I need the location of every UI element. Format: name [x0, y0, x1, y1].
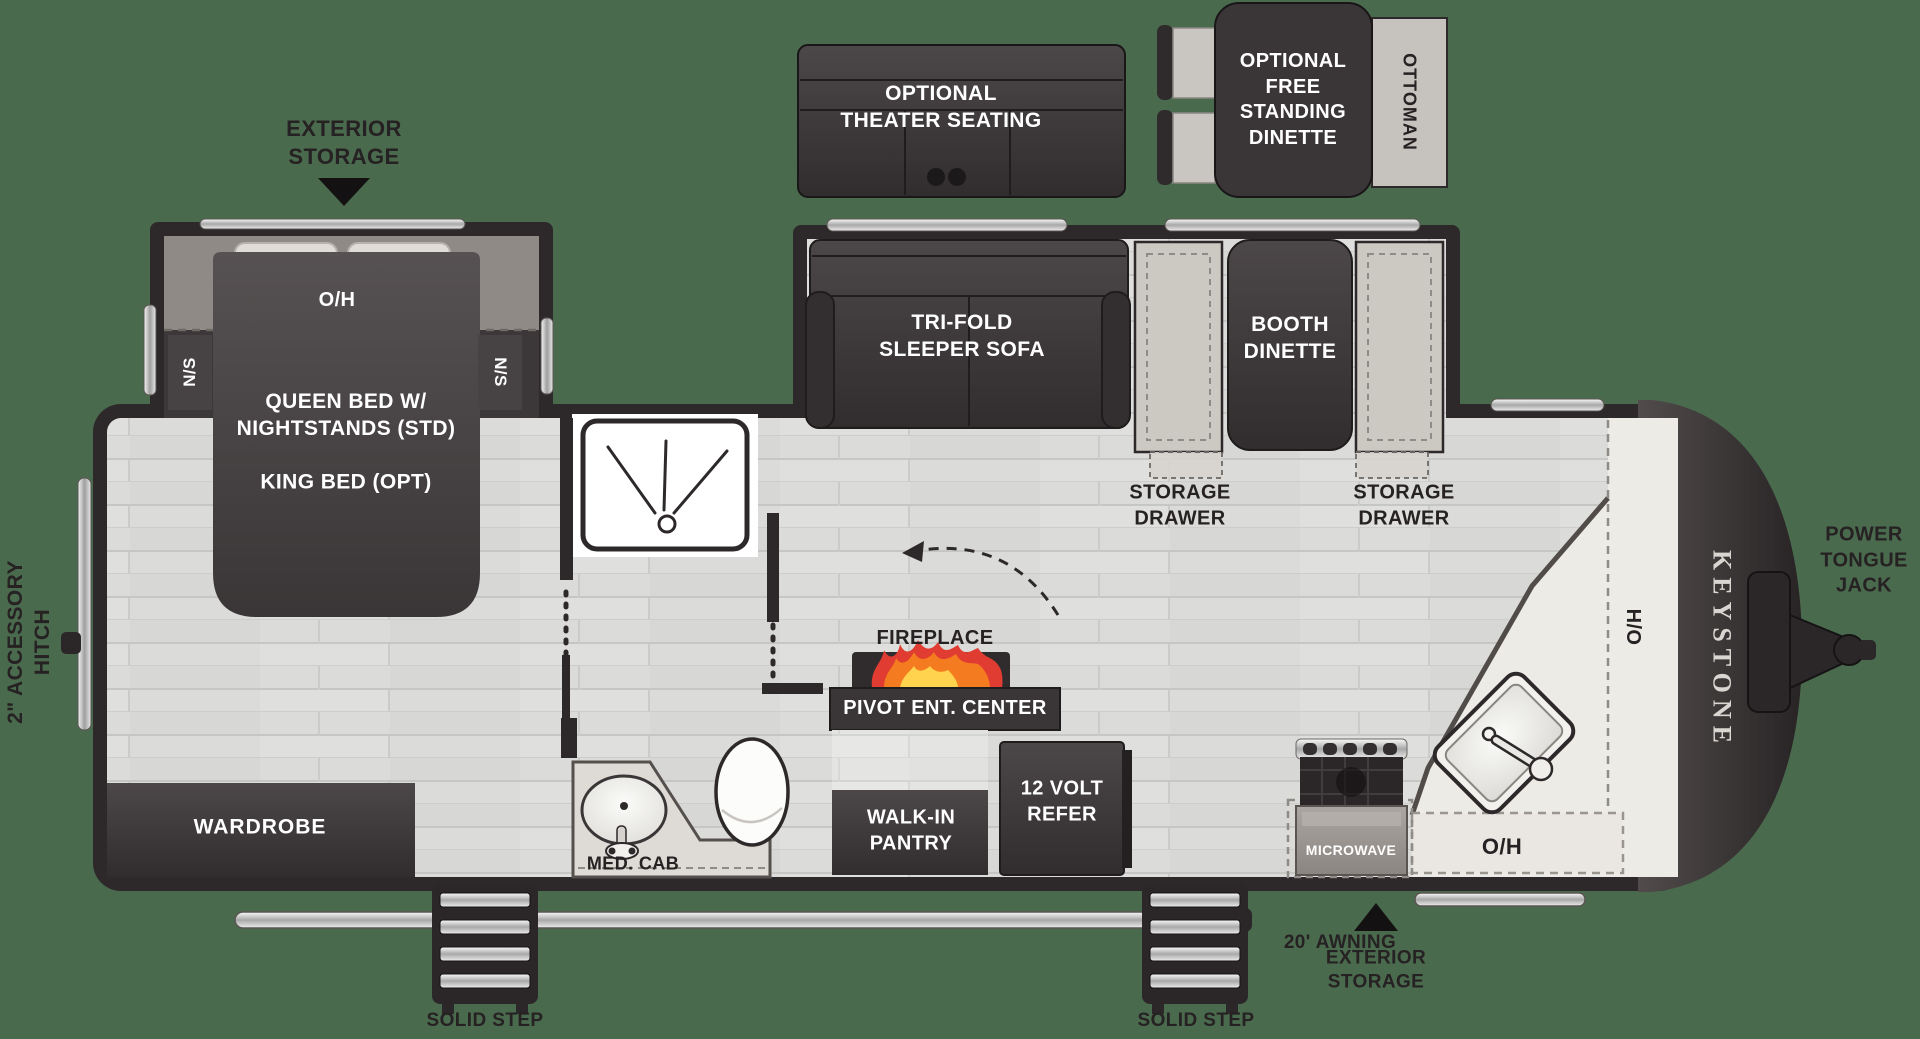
storage-drawer-left-label: STORAGE DRAWER: [1129, 480, 1230, 531]
theater-seating-label: OPTIONAL THEATER SEATING: [840, 81, 1041, 135]
booth-dinette-label: BOOTH DINETTE: [1244, 312, 1337, 366]
med-cab-label: MED. CAB: [587, 852, 679, 875]
dinette-chair-seat: [1173, 28, 1215, 98]
solid-step-right-graphic: [1142, 884, 1248, 1014]
shower-drain: [659, 516, 675, 532]
exterior-storage-top-label: EXTERIOR STORAGE: [286, 115, 402, 171]
dinette-chair-back: [1157, 25, 1173, 100]
queen-bed-label: QUEEN BED W/ NIGHTSTANDS (STD): [237, 389, 456, 443]
living-slide-grab-bar-right: [1165, 219, 1420, 231]
ottoman-label: OTTOMAN: [1397, 53, 1420, 151]
solid-step-right-label: SOLID STEP: [1138, 1009, 1255, 1033]
grab-handle: [1415, 893, 1585, 906]
accessory-hitch-receiver: [61, 632, 81, 654]
rear-bumper: [61, 478, 91, 730]
arrow-up-icon: [1354, 903, 1398, 931]
booth-bench-right: [1356, 242, 1443, 452]
floorplan-canvas: EXTERIOR STORAGE OPTIONAL THEATER SEATIN…: [0, 0, 1920, 1039]
nightstand-right-label: N/S: [489, 357, 511, 387]
fireplace-label: FIREPLACE: [877, 626, 994, 652]
exterior-storage-bottom-label: EXTERIOR STORAGE: [1326, 947, 1426, 996]
dinette-chair-back: [1157, 110, 1173, 185]
solid-step-left-label: SOLID STEP: [427, 1009, 544, 1033]
cupholder: [927, 168, 945, 186]
kitchen-overhead-label: O/H: [1482, 833, 1522, 861]
pivot-ent-center-label: PIVOT ENT. CENTER: [843, 696, 1047, 722]
living-slide-grab-bar-left: [827, 219, 1067, 231]
toilet: [716, 739, 788, 845]
bedroom-window-left: [144, 305, 156, 395]
arrow-down-icon: [318, 178, 370, 206]
bedroom-overhead-label: O/H: [319, 288, 356, 314]
wardrobe-label: WARDROBE: [194, 815, 327, 842]
hutch-overhead-label: H/O: [1619, 609, 1645, 646]
microwave-label: MICROWAVE: [1306, 842, 1396, 860]
cupholder: [948, 168, 966, 186]
accessory-hitch-label: 2" ACCESSORY HITCH: [3, 560, 57, 724]
twelve-volt-refer-label: 12 VOLT REFER: [1021, 776, 1103, 827]
storage-drawer-ext-left: [1150, 452, 1222, 478]
free-standing-dinette-label: OPTIONAL FREE STANDING DINETTE: [1240, 49, 1347, 151]
power-tongue-jack-label: POWER TONGUE JACK: [1820, 523, 1908, 600]
booth-bench-left: [1135, 242, 1222, 452]
brand-logo: KEYSTONE: [1705, 550, 1738, 750]
walk-in-pantry-label: WALK-IN PANTRY: [867, 805, 955, 856]
bedroom-window-right: [541, 318, 553, 394]
king-bed-label: KING BED (OPT): [260, 470, 431, 497]
tri-fold-sofa-label: TRI-FOLD SLEEPER SOFA: [879, 310, 1045, 364]
dinette-chair-seat: [1173, 113, 1215, 183]
awning-roller: [235, 912, 1225, 928]
nightstand-left-label: N/S: [179, 357, 201, 387]
storage-drawer-right-label: STORAGE DRAWER: [1353, 480, 1454, 531]
kitchen-window: [1491, 399, 1604, 411]
storage-drawer-ext-right: [1356, 452, 1428, 478]
solid-step-left-graphic: [432, 884, 538, 1014]
bedroom-slide-grab-bar: [200, 219, 465, 229]
